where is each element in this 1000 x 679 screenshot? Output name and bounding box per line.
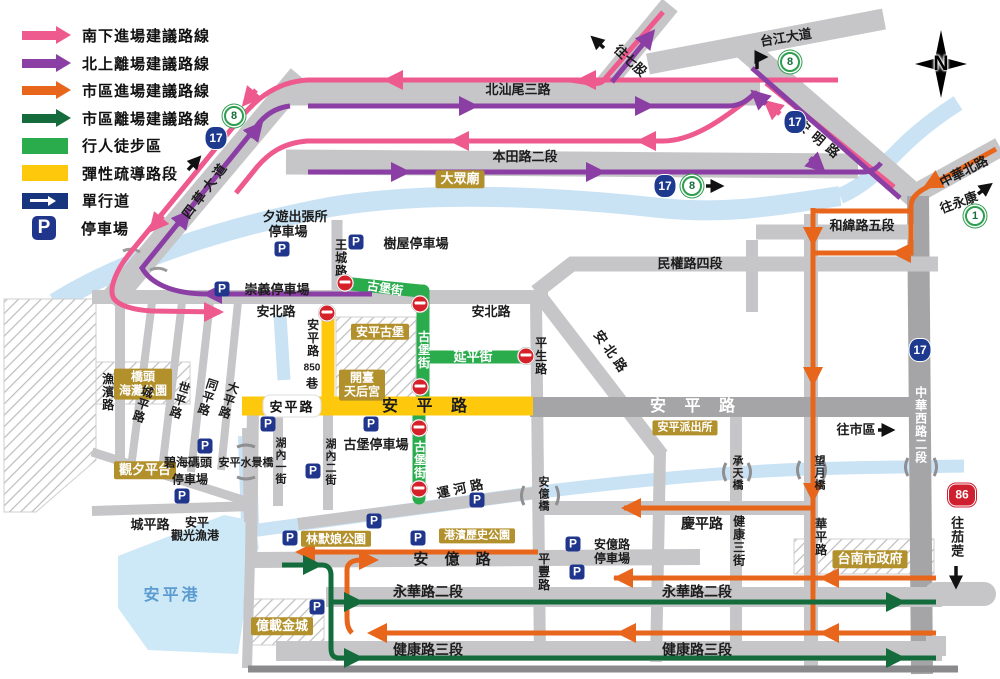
no-entry-icon: [412, 296, 429, 313]
beach-park-area: [4, 299, 96, 512]
road-label: 北汕尾三路: [485, 83, 550, 97]
road-label: 古堡街: [416, 331, 429, 370]
arrow-to-qigu: [593, 38, 604, 48]
landmark-eternal-golden-castle: 億載金城: [251, 617, 313, 635]
parking-label: 停車場: [172, 473, 208, 486]
bridge-label: 望月橋: [813, 455, 825, 491]
highway-17-shield: 17: [784, 110, 807, 134]
road-label: 慶平路: [681, 516, 723, 531]
parking-icon: P: [275, 242, 290, 257]
legend-north-exit: 北上離場建議路線: [22, 50, 210, 78]
oneway-icon: [22, 193, 68, 209]
parking-icon: P: [310, 600, 325, 615]
highway-17-shield: 17: [205, 126, 228, 150]
road-waterscape-bridge: [246, 428, 248, 522]
parking-icon: P: [349, 235, 364, 250]
road-label: 安平路: [305, 319, 318, 358]
pink-arrow-icon: [22, 31, 56, 40]
no-entry-icon: [337, 275, 354, 292]
anping-traffic-map: 南下進場建議路線 北上離場建議路線 市區進場建議路線 市區離場建議路線 行人徒步…: [0, 0, 1000, 679]
river-west-strip: [280, 315, 284, 380]
no-entry-icon: [518, 348, 535, 365]
bridge-label: 承天橋: [731, 455, 743, 491]
parking-icon: P: [367, 514, 382, 529]
direction-label: 往茄萣: [949, 516, 963, 558]
road-label: 永華路二段: [662, 584, 732, 599]
green-arrow-icon: [22, 114, 56, 123]
parking-label: 安億路: [594, 538, 630, 551]
place-label: 觀光漁港: [171, 529, 219, 542]
direction-label: 往市區: [836, 423, 875, 437]
route-1-shield: 1: [965, 206, 985, 226]
parking-icon: P: [175, 489, 190, 504]
parking-label: 碧海碼頭: [164, 456, 212, 469]
bridge-label: 安億橋: [537, 476, 549, 512]
green-swatch-icon: [22, 138, 68, 154]
compass-north-label: N: [933, 52, 948, 76]
road-label: 安北路: [256, 305, 295, 319]
road-label: 古堡街: [412, 441, 425, 480]
no-entry-icon: [411, 420, 428, 437]
arrow-to-yongkang: [978, 185, 990, 194]
road-minquan: [536, 264, 938, 292]
legend-city-entry: 市區進場建議路線: [22, 77, 210, 105]
purple-arrow-icon: [22, 59, 56, 68]
road-label: 湖內一街: [274, 437, 286, 485]
road-label: 永華路二段: [393, 584, 463, 599]
road-label: 本田路二段: [492, 150, 557, 164]
no-entry-icon: [319, 305, 336, 322]
road-coast-west: [251, 408, 253, 560]
parking-icon: P: [566, 537, 581, 552]
parking-icon: P: [411, 531, 426, 546]
parking-icon: P: [364, 417, 379, 432]
water-label-anping-harbor: 安平港: [143, 587, 200, 605]
landmark-dazhong-temple: 大眾廟: [435, 170, 484, 188]
landmark-city-hall: 台南市政府: [832, 550, 907, 568]
route-8-shield: 8: [682, 176, 702, 196]
legend-city-exit: 市區離場建議路線: [22, 105, 210, 133]
road-label: 和緯路五段: [829, 219, 894, 233]
road-stub-small: [926, 636, 946, 656]
road-label: 安 億 路: [413, 552, 496, 569]
legend-parking: P停車場: [22, 215, 210, 243]
parking-icon: P: [32, 216, 56, 240]
parking-icon: P: [570, 565, 585, 580]
no-entry-icon: [412, 379, 429, 396]
road-label: 延平街: [453, 350, 492, 364]
road-label: 850: [304, 363, 321, 374]
legend-pedestrian: 行人徒步區: [22, 132, 210, 160]
road-label: 健康路三段: [393, 642, 463, 657]
landmark-police-station: 安平派出所: [653, 420, 718, 435]
landmark-harbor-history-park: 港濱歷史公園: [439, 528, 515, 543]
road-coast-west2: [247, 560, 250, 668]
bridge-label: 安平水景橋: [219, 457, 274, 469]
parking-label: 停車場: [594, 552, 630, 565]
orange-arrow-icon: [22, 86, 56, 95]
parking-icon: P: [198, 439, 213, 454]
road-label: 王城路: [333, 239, 346, 278]
road-bentian: [286, 162, 858, 166]
highway-17-shield: 17: [909, 338, 932, 362]
road-label: 安北路: [471, 305, 510, 319]
road-label: 健康三街: [731, 515, 744, 567]
yellow-swatch-icon: [22, 165, 68, 181]
parking-icon: P: [215, 282, 230, 297]
no-entry-icon: [411, 481, 428, 498]
road-label-box: 安平路: [262, 395, 321, 418]
road-label: 安 平 路: [650, 398, 742, 416]
landmark-linmoniang-park: 林默娘公園: [301, 531, 371, 547]
parking-label: 古堡停車場: [343, 438, 408, 452]
parking-icon: P: [306, 464, 321, 479]
parking-icon: P: [283, 531, 298, 546]
road-label: 平生路: [533, 337, 546, 376]
highway-17-shield: 17: [654, 174, 677, 198]
road-anbei-diag: [540, 296, 662, 455]
parking-label: 崇義停車場: [244, 283, 309, 297]
route-8-shield: 8: [224, 106, 244, 126]
road-label: 中華西路二段: [913, 386, 926, 464]
road-chengping-h: [92, 506, 254, 511]
road-label: 城平路: [130, 518, 169, 532]
parking-label: 停車場: [268, 225, 307, 239]
route-8-shield: 8: [780, 52, 800, 72]
parking-label: 樹屋停車場: [383, 237, 448, 251]
road-label: 巷: [306, 377, 318, 390]
road-label: 健康路三段: [662, 642, 732, 657]
landmark-tianhou-temple: 開臺天后宮: [339, 370, 385, 401]
road-label: 華平路: [813, 518, 826, 557]
road-label: 平豐路: [536, 553, 549, 592]
road-label: 漁濱路: [100, 373, 113, 412]
canal-east: [540, 466, 964, 492]
legend-south-entry: 南下進場建議路線: [22, 22, 210, 50]
parking-icon: P: [470, 493, 485, 508]
legend-flexible: 彈性疏導路段: [22, 160, 210, 188]
road-label: 湖內二街: [324, 438, 336, 486]
road-label: 安 平 路: [382, 398, 474, 416]
expressway-86-shield: 86: [948, 484, 976, 507]
parking-label: 夕遊出張所: [262, 210, 327, 224]
road-label: 民權路四段: [657, 257, 722, 271]
parking-icon: P: [261, 417, 276, 432]
landmark-fort-zeelandia: 安平古堡: [351, 324, 409, 340]
